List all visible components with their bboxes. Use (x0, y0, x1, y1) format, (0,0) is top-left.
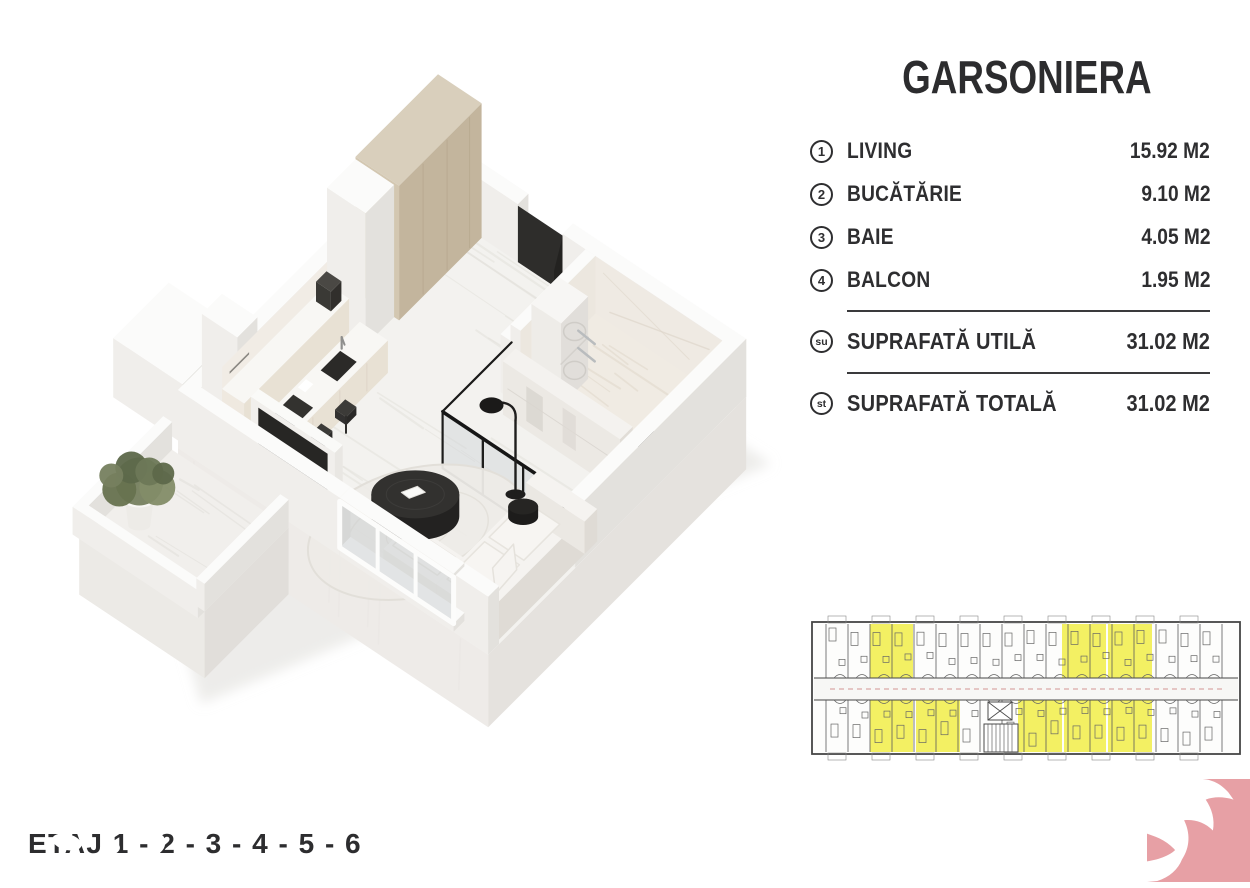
room-number-badge: 3 (810, 226, 833, 249)
room-row-balcony: 4 BALCON 1.95 M2 (810, 267, 1210, 293)
room-row-living: 1 LIVING 15.92 M2 (810, 138, 1210, 164)
room-number-badge: 1 (810, 140, 833, 163)
plan-title-wrap: GARSONIERA (844, 50, 1210, 104)
divider (847, 372, 1210, 374)
total-row-useful-area: su SUPRAFATĂ UTILĂ 31.02 M2 (810, 328, 1210, 355)
total-area: 31.02 M2 (1127, 328, 1210, 355)
info-panel: GARSONIERA 1 LIVING 15.92 M2 2 BUCĂTĂRIE… (810, 50, 1210, 434)
room-area: 1.95 M2 (1141, 267, 1210, 293)
room-number-badge: 4 (810, 269, 833, 292)
building-floor-plan (806, 612, 1246, 764)
total-row-total-area: st SUPRAFATĂ TOTALĂ 31.02 M2 (810, 390, 1210, 417)
room-row-kitchen: 2 BUCĂTĂRIE 9.10 M2 (810, 181, 1210, 207)
plan-title: GARSONIERA (902, 50, 1151, 104)
room-label: BALCON (847, 267, 930, 293)
room-label: LIVING (847, 138, 912, 164)
dove-icon (1147, 778, 1250, 883)
total-label: SUPRAFATĂ UTILĂ (847, 328, 1036, 355)
room-list: 1 LIVING 15.92 M2 2 BUCĂTĂRIE 9.10 M2 3 … (810, 138, 1210, 293)
room-row-bath: 3 BAIE 4.05 M2 (810, 224, 1210, 250)
room-area: 4.05 M2 (1141, 224, 1210, 250)
developer-logo (1147, 778, 1250, 883)
room-area: 9.10 M2 (1141, 181, 1210, 207)
room-label: BAIE (847, 224, 894, 250)
total-label: SUPRAFATĂ TOTALĂ (847, 390, 1057, 417)
su-badge: su (810, 330, 833, 353)
st-badge: st (810, 392, 833, 415)
room-label: BUCĂTĂRIE (847, 181, 962, 207)
room-number-badge: 2 (810, 183, 833, 206)
total-area: 31.02 M2 (1127, 390, 1210, 417)
apartment-3d-render (0, 0, 800, 800)
room-area: 15.92 M2 (1130, 138, 1210, 164)
divider (847, 310, 1210, 312)
